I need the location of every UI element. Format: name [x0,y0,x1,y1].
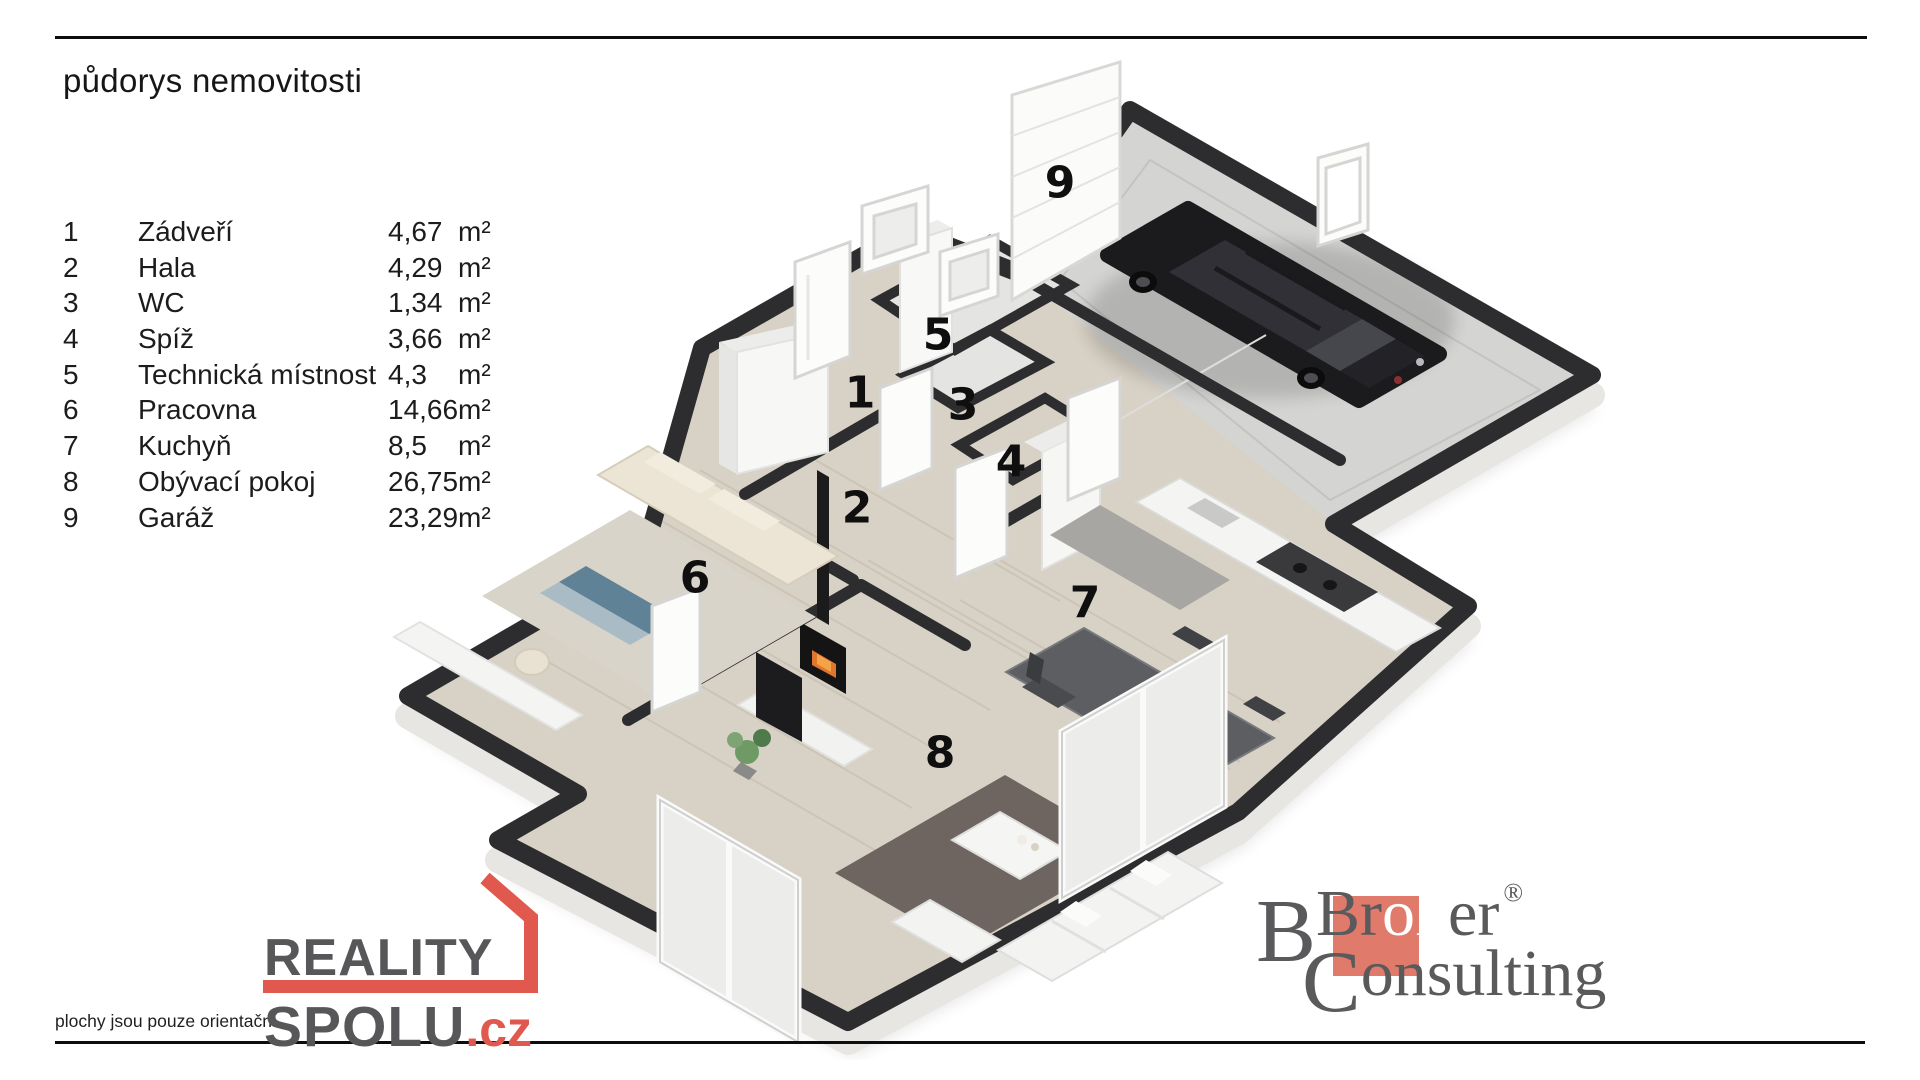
registered-mark: ® [1503,878,1523,907]
plan-label-6: 6 [680,553,711,604]
plan-label-1: 1 [845,368,876,419]
disclaimer-text: plochy jsou pouze orientační [55,1011,277,1032]
plan-label-9: 9 [1045,158,1076,209]
page-title: půdorys nemovitosti [63,62,362,100]
top-rule [55,36,1867,39]
spolu-wordmark: SPOLU.cz [264,994,532,1060]
broker-consulting-logo: BBroker® Consulting [1256,890,1686,1050]
reality-wordmark: REALITY [264,928,493,988]
plan-label-3: 3 [948,380,979,431]
consulting-wordmark: Consulting [1302,932,1606,1033]
plan-label-5: 5 [923,310,954,361]
reality-spolu-logo: REALITY SPOLU.cz [255,870,555,1060]
plan-label-7: 7 [1070,578,1101,629]
plan-label-8: 8 [925,728,956,779]
plan-label-4: 4 [996,437,1027,488]
plan-label-2: 2 [842,483,873,534]
